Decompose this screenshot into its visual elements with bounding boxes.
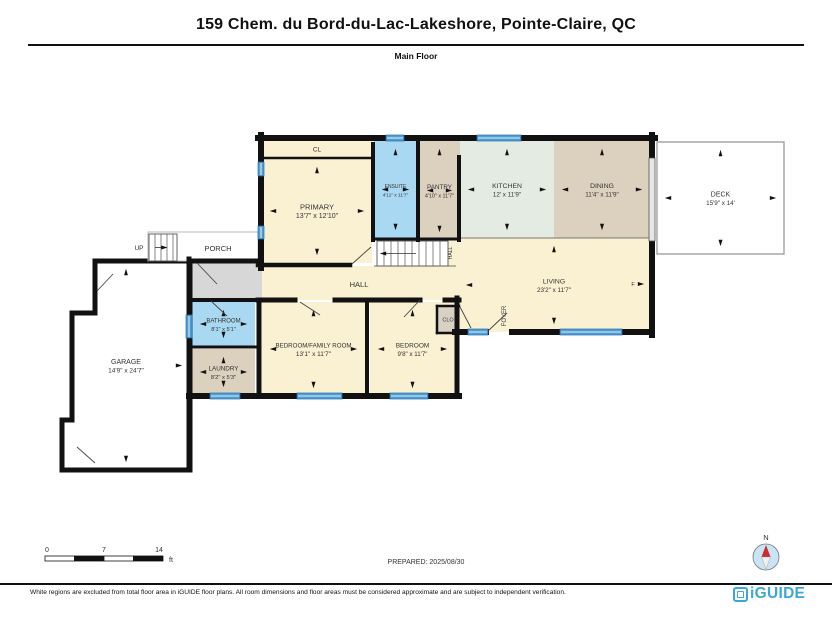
window [186, 315, 192, 338]
patio-door [649, 158, 655, 241]
compass: N [753, 533, 779, 570]
scale-bar-segment [134, 556, 164, 561]
window [258, 162, 264, 176]
scale-bar: 0714ft [45, 547, 173, 564]
floor-plan-drawing: CLPRIMARY13'7" x 12'10"ENSUITE4'11" x 11… [0, 0, 832, 624]
room-cl-closet: CL [262, 141, 372, 158]
scale-tick: 14 [155, 547, 163, 554]
room-deck-name: DECK [711, 192, 731, 199]
room-ensuite: ENSUITE4'11" x 11'7" [374, 141, 417, 238]
window [390, 393, 428, 399]
plan-label-text: FOYER [502, 305, 508, 326]
room-clo-closet-name: CLO [442, 318, 454, 324]
plan-label-text: UP [134, 245, 143, 252]
scale-tick: 0 [45, 547, 49, 554]
window [297, 393, 342, 399]
room-dining-dims: 11'4" x 11'9" [585, 192, 619, 199]
room-bathroom-name: BATHROOM [206, 319, 240, 325]
staircase [377, 241, 448, 266]
room-laundry-dims: 8'2" x 5'3" [211, 375, 236, 381]
prepared-date: PREPARED: 2025/08/30 [388, 559, 465, 566]
room-garage-dims: 14'9" x 24'7" [108, 368, 144, 375]
room-vestibule [192, 262, 262, 300]
window [468, 329, 488, 335]
scale-unit: ft [169, 557, 173, 564]
iguide-logo-text: iGUIDE [750, 585, 805, 603]
room-deck: DECK15'9" x 14' [657, 142, 784, 254]
room-living-dims: 23'2" x 11'7" [537, 287, 571, 294]
room-primary-name: PRIMARY [300, 203, 334, 212]
plan-label: UP [134, 245, 143, 252]
room-laundry-name: LAUNDRY [209, 366, 240, 373]
room-bedroom-dims: 9'8" x 11'7" [397, 351, 427, 358]
compass-n-label: N [763, 533, 768, 542]
iguide-logo-icon [733, 587, 748, 602]
room-bedroom-name: BEDROOM [396, 343, 430, 350]
room-deck-dims: 15'9" x 14' [706, 200, 735, 207]
window [386, 135, 404, 141]
room-bedroom-family-dims: 13'1" x 11'7" [296, 351, 332, 358]
room-bedroom-family: BEDROOM/FAMILY ROOM13'1" x 11'7" [262, 302, 365, 396]
room-living-name: LIVING [543, 279, 565, 286]
plan-label: HALL [350, 280, 369, 289]
room-vestibule-area [192, 262, 262, 300]
scale-bar-segment [45, 556, 75, 561]
room-pantry: PANTRY4'10" x 11'7" [419, 141, 460, 240]
room-garage-name: GARAGE [111, 359, 141, 366]
room-bedroom-family-name: BEDROOM/FAMILY ROOM [275, 343, 351, 350]
plan-label: FOYER [502, 305, 508, 326]
room-laundry: LAUNDRY8'2" x 5'3" [192, 349, 255, 395]
window [258, 226, 264, 239]
room-pantry-dims: 4'10" x 11'7" [425, 194, 454, 200]
window [477, 135, 521, 141]
room-dining: DINING11'4" x 11'9" [554, 141, 650, 238]
room-primary-dims: 13'7" x 12'10" [296, 213, 339, 220]
footer-divider [0, 583, 832, 585]
scale-bar-segment [104, 556, 134, 561]
iguide-logo: iGUIDE [733, 585, 805, 603]
scale-tick: 7 [102, 547, 106, 554]
room-primary: PRIMARY13'7" x 12'10" [262, 159, 372, 263]
room-bathroom: BATHROOM8'1" x 5'1" [192, 302, 255, 346]
plan-label: HALL [448, 247, 454, 260]
floorplan-page: 159 Chem. du Bord-du-Lac-Lakeshore, Poin… [0, 0, 832, 624]
room-garage: GARAGE14'9" x 24'7" [62, 261, 190, 470]
staircase [149, 234, 177, 261]
plan-label-text: HALL [350, 280, 369, 289]
window [560, 329, 622, 335]
prepared-date-text: PREPARED: 2025/08/30 [388, 559, 465, 566]
room-ensuite-dims: 4'11" x 11'7" [383, 193, 409, 199]
room-kitchen-name: KITCHEN [492, 183, 522, 190]
room-dining-name: DINING [590, 183, 614, 190]
scale-bar-segment [75, 556, 105, 561]
disclaimer-text: White regions are excluded from total fl… [30, 589, 680, 596]
room-living: LIVING23'2" x 11'7" [458, 238, 650, 332]
window [210, 393, 240, 399]
room-kitchen-dims: 12' x 11'9" [493, 192, 521, 199]
plan-label-text: HALL [448, 247, 454, 260]
room-porch-name: PORCH [204, 244, 231, 253]
room-kitchen: KITCHEN12' x 11'9" [460, 141, 554, 238]
room-cl-closet-name: CL [313, 147, 322, 154]
